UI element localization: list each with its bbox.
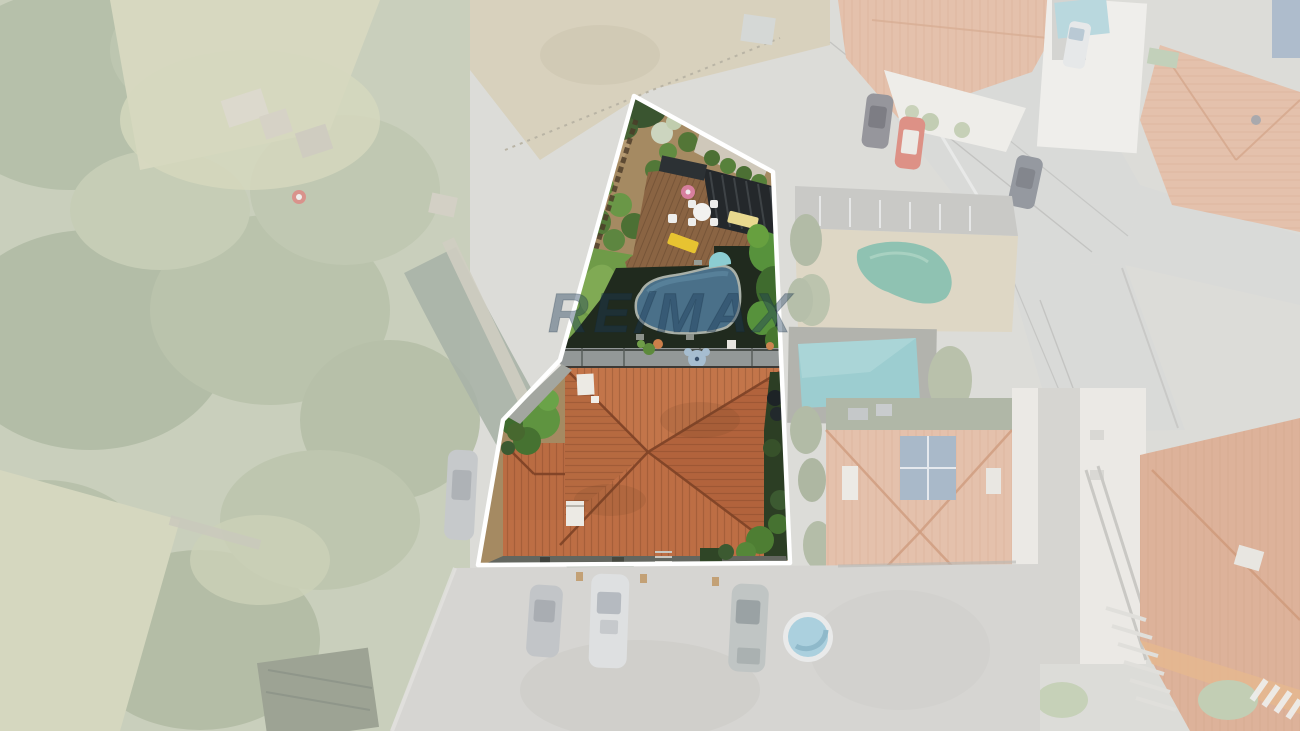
faded-neighbor-lot — [794, 186, 1018, 332]
faded-parking-lot — [390, 562, 1040, 731]
chimney — [576, 374, 594, 396]
chimney-2 — [566, 501, 584, 526]
remax-watermark: RE/MAX — [548, 281, 796, 344]
aerial-photo: RE/MAX — [0, 0, 1300, 731]
